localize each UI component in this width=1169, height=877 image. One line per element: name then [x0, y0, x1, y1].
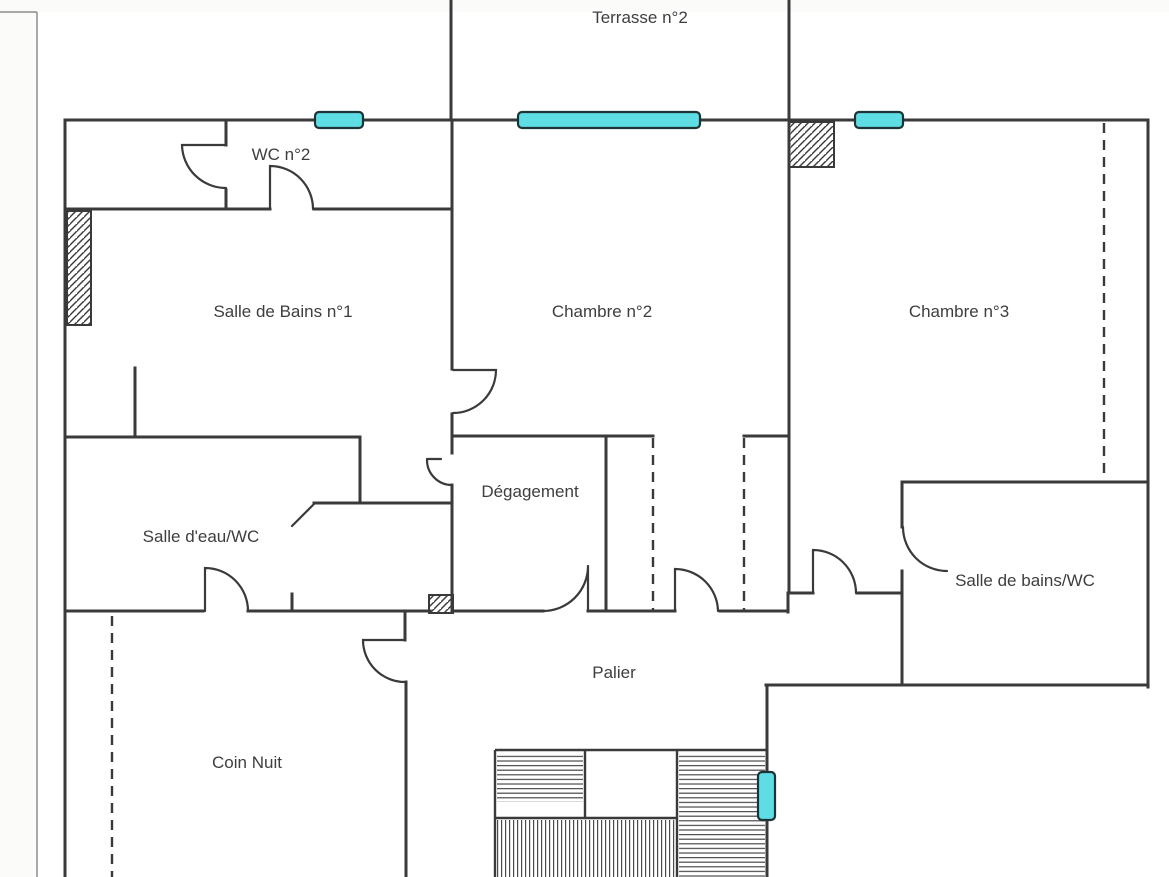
hatched-column-top	[789, 122, 834, 167]
floor-plan-drawing: Terrasse n°2 WC n°2 Salle de Bains n°1 C…	[0, 0, 1169, 877]
label-salle-de-bains-wc: Salle de bains/WC	[955, 571, 1095, 590]
label-salle-deau-wc: Salle d'eau/WC	[143, 527, 260, 546]
stair-flight-bottom	[497, 820, 675, 877]
label-chambre-3: Chambre n°3	[909, 302, 1009, 321]
floor-plan-page: Terrasse n°2 WC n°2 Salle de Bains n°1 C…	[0, 0, 1169, 877]
stair-flight-right	[679, 753, 765, 877]
window-top-left	[315, 112, 363, 128]
window-top-right	[855, 112, 903, 128]
page-edge-line	[0, 12, 37, 877]
window-terrace	[518, 112, 700, 128]
label-salle-de-bains-1: Salle de Bains n°1	[213, 302, 352, 321]
hatched-column-left	[67, 211, 91, 325]
label-wc2: WC n°2	[252, 145, 311, 164]
chambre2-chambre3-wall	[788, 120, 789, 612]
hatched-column-corridor	[429, 595, 453, 613]
page-background	[37, 12, 1169, 877]
label-chambre-2: Chambre n°2	[552, 302, 652, 321]
label-coin-nuit: Coin Nuit	[212, 753, 282, 772]
label-terrasse: Terrasse n°2	[592, 8, 688, 27]
label-degagement: Dégagement	[481, 482, 579, 501]
label-palier: Palier	[592, 663, 636, 682]
stair-flight-upper-left	[497, 753, 583, 802]
window-stairwell	[758, 772, 775, 820]
